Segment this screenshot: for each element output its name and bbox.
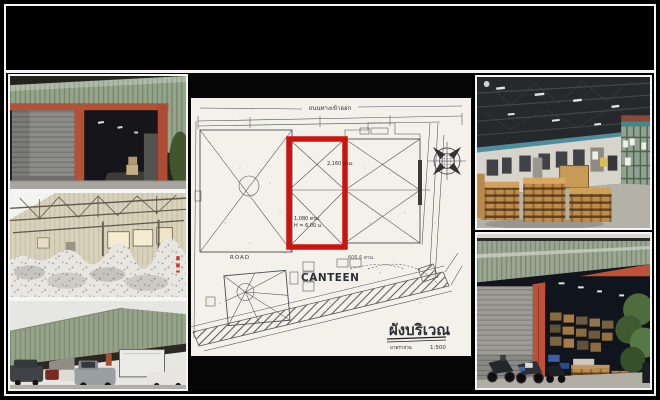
roller-shutter-door bbox=[12, 110, 75, 183]
photo-warehouse-interior-pile bbox=[8, 191, 188, 299]
photo-warehouse-exterior-cars bbox=[8, 299, 188, 391]
photo-warehouse-interior-pallets bbox=[475, 75, 652, 230]
redacted-title-banner bbox=[6, 6, 654, 69]
red-white-pole bbox=[176, 256, 179, 272]
building-area-label: 2,160 ตรม. bbox=[327, 161, 354, 167]
concrete-apron bbox=[10, 181, 186, 189]
open-doorway-interior bbox=[84, 110, 157, 183]
sky-sliver bbox=[477, 234, 650, 238]
photo-warehouse-gate-front bbox=[8, 74, 188, 191]
unit-height-label: H = 6.00 ม. bbox=[294, 223, 323, 229]
road-surface bbox=[10, 385, 186, 389]
road-top-label: ถนนทางเข้าออก bbox=[309, 105, 352, 112]
canteen-label: CANTEEN bbox=[301, 272, 359, 284]
compass-rose-icon bbox=[428, 142, 466, 180]
plan-title: ผังบริเวณ bbox=[389, 321, 450, 339]
photo-warehouse-gate-motorcycles bbox=[475, 232, 652, 390]
canteen-area-label: 606.6 ตรม. bbox=[348, 255, 375, 261]
road-label: ROAD bbox=[230, 255, 250, 261]
yellow-sign bbox=[600, 158, 607, 167]
plan-scale-value: 1:500 bbox=[430, 345, 446, 351]
unit-area-label: 1,080 ตรม. bbox=[294, 216, 321, 222]
plan-scale-label: มาตราส่วน bbox=[390, 345, 412, 351]
site-plan: ถนนทางเข้าออก 2,160 ตรม. bbox=[190, 73, 472, 391]
green-window-wall bbox=[621, 115, 650, 184]
roof-edge bbox=[477, 238, 650, 241]
